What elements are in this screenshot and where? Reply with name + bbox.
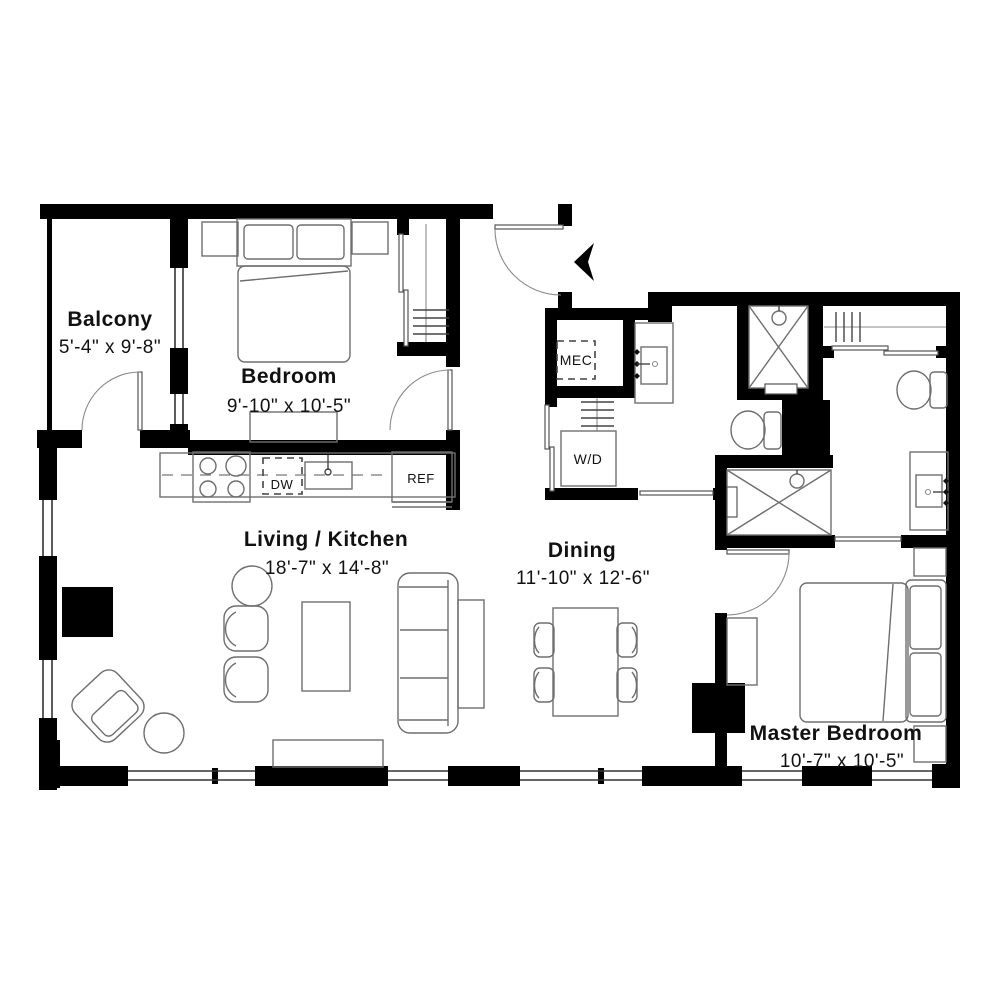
wall-mec-wd-divider: [545, 386, 635, 398]
living-kitchen-dims: 18'-7" x 14'-8": [265, 558, 389, 579]
floor-plan-page: DW REF MEC W/D: [0, 0, 1000, 1000]
mec-label: MEC: [560, 352, 593, 368]
toilet-icon: [731, 411, 781, 449]
wall-balcony-bottom-right: [140, 430, 190, 448]
entry-door: [495, 225, 563, 295]
dining-chair: [617, 623, 637, 657]
wall-bedroom-right-bottom: [446, 430, 460, 510]
washer-dryer-label: W/D: [574, 451, 603, 467]
wall-mec-top: [545, 308, 672, 320]
living-kitchen-label: Living / Kitchen: [244, 528, 408, 551]
media-console: [273, 740, 383, 767]
wall-bottom-4: [642, 766, 742, 786]
dining-table: [553, 608, 618, 716]
window-bottom-2: [388, 771, 448, 780]
wall-mbath-south-left: [715, 535, 835, 548]
window-bottom-3: [520, 771, 642, 780]
wall-balcony-bottom-left: [37, 430, 82, 448]
master-bedroom-dims: 10'-7" x 10'-5": [780, 751, 904, 772]
sofa-icon: [398, 573, 458, 733]
column-living: [62, 587, 113, 637]
balcony-door: [82, 372, 142, 430]
dining-chair: [534, 623, 554, 657]
window-divider-1: [175, 268, 183, 348]
wd-closet-door: [545, 405, 554, 491]
shower-icon: [727, 470, 831, 535]
wall-entry-jamb: [558, 204, 572, 226]
bedroom-label: Bedroom: [241, 365, 337, 388]
windows: [43, 268, 932, 780]
window-bottom-5: [872, 771, 932, 780]
console-table: [458, 600, 484, 708]
window-bottom-1: [128, 771, 255, 780]
bed-icon: [237, 219, 351, 362]
master-closet-sliding-door: [832, 346, 938, 355]
coffee-table: [302, 602, 350, 691]
nightstand: [914, 548, 946, 576]
wd-closet: W/D: [561, 398, 616, 486]
vanity-sink-icon: [910, 452, 949, 530]
toilet-icon: [897, 371, 947, 409]
bedroom-dims: 9'-10" x 10'-5": [227, 396, 351, 417]
window-left-1: [43, 500, 52, 556]
wall-top: [40, 204, 493, 219]
wall-left-2: [39, 556, 57, 660]
wall-bottom-2: [255, 766, 388, 786]
dining-chair: [534, 668, 554, 702]
floor-plan: DW REF MEC W/D: [0, 0, 1000, 1000]
nightstand: [202, 222, 238, 256]
window-divider-2: [175, 394, 183, 424]
master-closet: [824, 312, 946, 342]
stove-icon: [193, 452, 250, 502]
bathroom-1: [634, 306, 808, 449]
wall-bath1-bottom: [545, 488, 638, 500]
accent-chair: [67, 665, 149, 747]
dining-furniture: [534, 608, 637, 716]
wall-bottom-3: [448, 766, 520, 786]
nightstand: [352, 222, 388, 254]
wall-bottom-corner-right: [932, 764, 960, 788]
dishwasher-icon: DW: [263, 458, 302, 494]
side-table: [144, 713, 184, 753]
balcony-rail: [47, 219, 52, 446]
wall-shower2-top: [715, 455, 833, 468]
window-left-2: [43, 660, 52, 718]
dining-dims: 11'-10" x 12'-6": [516, 568, 650, 589]
master-bedroom-label: Master Bedroom: [750, 722, 923, 745]
wall-shower1-left: [737, 292, 749, 400]
dining-label: Dining: [548, 539, 616, 562]
wall-divider-2: [170, 348, 188, 394]
bedroom-door: [390, 370, 452, 430]
armchair: [224, 606, 268, 651]
wall-mbath-south-right: [901, 535, 947, 548]
master-bath-sliding-door: [835, 537, 901, 541]
living-furniture: [67, 566, 484, 767]
kitchen-sink-icon: [305, 455, 352, 489]
armchair: [224, 657, 268, 702]
dresser: [727, 618, 757, 685]
wall-master-divider: [715, 613, 727, 685]
bedroom-closet-door: [399, 234, 408, 346]
balcony-label: Balcony: [67, 308, 152, 331]
bath1-pocket-door: [640, 491, 713, 495]
dining-chair: [617, 668, 637, 702]
entry-arrow-icon: [574, 243, 594, 281]
kitchen: DW REF: [160, 452, 455, 507]
master-bedroom-door: [727, 550, 789, 615]
balcony-dims: 5'-4" x 9'-8": [59, 337, 161, 358]
bed-icon: [800, 580, 946, 722]
wall-top-right: [660, 292, 960, 306]
wall-bottom-1: [57, 766, 128, 786]
column-master: [692, 683, 745, 733]
wall-divider-1: [170, 219, 188, 268]
refrigerator-icon: REF: [392, 452, 452, 507]
refrigerator-label: REF: [407, 471, 435, 486]
dishwasher-label: DW: [271, 477, 294, 492]
bedroom-closet: [413, 224, 449, 342]
window-bottom-4: [742, 771, 802, 780]
shower-icon: [749, 306, 808, 394]
mec-closet: MEC: [557, 341, 595, 379]
wall-right: [946, 292, 960, 786]
vanity-sink-icon: [634, 323, 673, 403]
wall-closet-jamb: [397, 219, 409, 235]
